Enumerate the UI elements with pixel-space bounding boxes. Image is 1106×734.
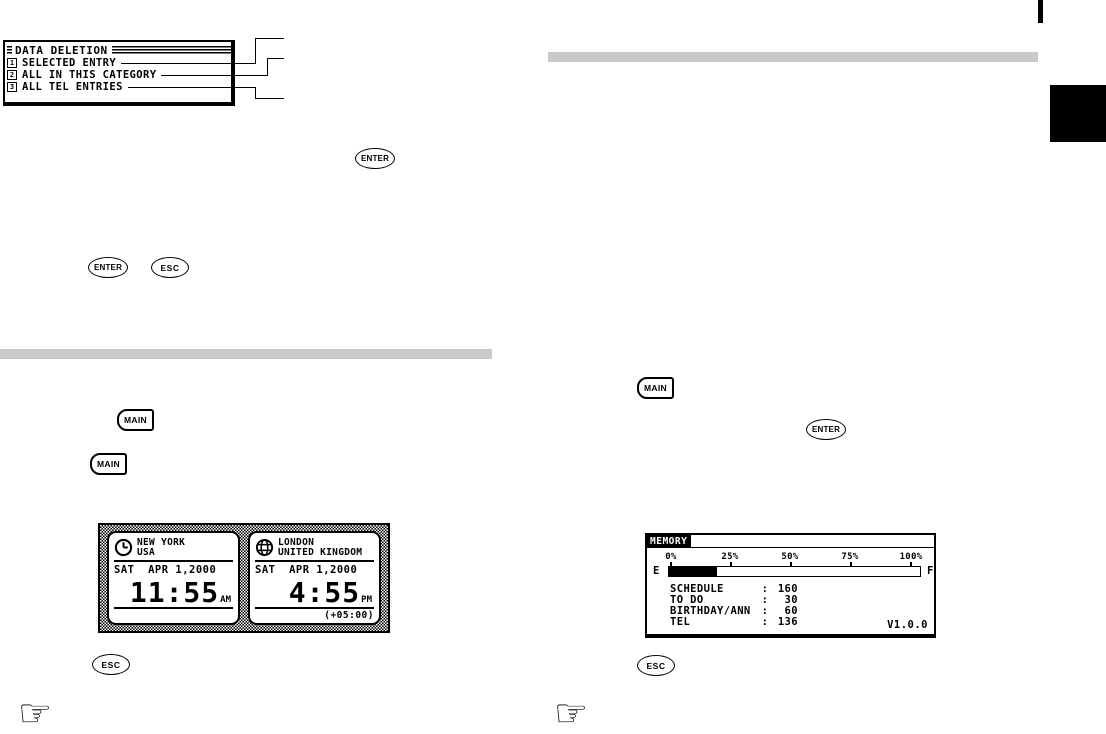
divider: [114, 560, 233, 562]
memory-title: MEMORY: [647, 534, 691, 548]
entry-label: TEL: [670, 616, 758, 628]
esc-key-label: ESC: [161, 263, 180, 273]
lcd-screen-data-deletion: DATA DELETION 1 SELECTED ENTRY 2 ALL IN …: [3, 40, 235, 106]
world-clock-panel: LONDON UNITED KINGDOM SAT APR 1,2000 4:5…: [248, 531, 381, 625]
callout-line-3: [231, 87, 256, 88]
enter-key-icon: ENTER: [806, 419, 846, 440]
title-fill-stripes: [112, 46, 231, 55]
callout-dash: [128, 87, 231, 88]
meridiem-label: AM: [220, 595, 231, 605]
list-icon: [7, 46, 12, 55]
main-key-label: MAIN: [644, 383, 667, 393]
time-value: 4:55: [289, 581, 360, 605]
meridiem-label: PM: [361, 595, 372, 605]
manual-page: DATA DELETION 1 SELECTED ENTRY 2 ALL IN …: [0, 0, 1106, 734]
main-key-icon: MAIN: [637, 377, 674, 399]
enter-key-label: ENTER: [361, 154, 389, 163]
manicule-note-icon: ☞: [554, 698, 588, 728]
callout-line-2: [267, 58, 284, 76]
gauge-fill: [669, 567, 717, 576]
section-heading-bar: [0, 349, 492, 359]
chapter-tab: [1050, 85, 1106, 142]
menu-item-label: SELECTED ENTRY: [22, 57, 116, 69]
callout-line-2: [231, 75, 268, 76]
entry-value: 136: [772, 616, 798, 628]
memory-title-bar: MEMORY: [647, 535, 934, 548]
section-heading-bar: [548, 52, 1038, 62]
callout-line-1: [231, 63, 256, 64]
callout-line-3: [255, 88, 284, 99]
time-row: 4:55 PM: [255, 576, 374, 605]
home-clock-header: NEW YORK USA: [114, 536, 233, 559]
city-name: NEW YORK: [137, 538, 185, 548]
scale-label-50: 50%: [781, 552, 798, 562]
footer-row: [114, 609, 233, 621]
main-key-icon: MAIN: [117, 409, 154, 431]
lcd-menu-title: DATA DELETION: [15, 44, 108, 57]
menu-item-selected-entry: 1 SELECTED ENTRY: [7, 57, 231, 69]
esc-key-icon: ESC: [637, 655, 675, 676]
lcd-screen-memory: MEMORY 0% 25% 50% 75% 100% E F SCHEDULE …: [645, 533, 936, 638]
main-key-icon: MAIN: [90, 453, 127, 475]
entry-colon: :: [758, 616, 772, 628]
enter-key-label: ENTER: [812, 425, 840, 434]
divider: [255, 560, 374, 562]
esc-key-label: ESC: [102, 660, 121, 670]
callout-dash: [121, 63, 231, 64]
enter-key-icon: ENTER: [355, 148, 395, 169]
globe-icon: [255, 538, 274, 557]
menu-item-all-tel-entries: 3 ALL TEL ENTRIES: [7, 81, 231, 93]
scale-label-25: 25%: [721, 552, 738, 562]
gauge-full-label: F: [927, 565, 933, 577]
time-offset: (+05:00): [255, 609, 374, 621]
main-key-label: MAIN: [124, 415, 147, 425]
date-text: SAT APR 1,2000: [255, 564, 374, 576]
country-name: UNITED KINGDOM: [278, 548, 362, 558]
esc-key-label: ESC: [647, 661, 666, 671]
gauge-empty-label: E: [653, 565, 659, 577]
menu-item-label: ALL TEL ENTRIES: [22, 81, 123, 93]
esc-key-icon: ESC: [92, 654, 130, 675]
world-clock-header: LONDON UNITED KINGDOM: [255, 536, 374, 559]
manicule-note-icon: ☞: [18, 698, 52, 728]
memory-entry-todo: TO DO : 30: [670, 594, 798, 605]
callout-dash: [161, 75, 231, 76]
memory-usage-gauge: [668, 566, 921, 577]
menu-item-label: ALL IN THIS CATEGORY: [22, 69, 156, 81]
enter-key-icon: ENTER: [88, 257, 128, 278]
memory-entry-list: SCHEDULE : 160 TO DO : 30 BIRTHDAY/ANN :…: [670, 583, 798, 627]
firmware-version: V1.0.0: [887, 619, 928, 631]
title-underline: [691, 535, 934, 548]
date-text: SAT APR 1,2000: [114, 564, 233, 576]
scale-label-75: 75%: [841, 552, 858, 562]
city-name: LONDON: [278, 538, 362, 548]
main-key-label: MAIN: [97, 459, 120, 469]
clock-icon: [114, 538, 133, 557]
scale-label-0: 0%: [665, 552, 676, 562]
country-name: USA: [137, 548, 185, 558]
time-value: 11:55: [130, 581, 219, 605]
page-edge-tick: [1038, 0, 1043, 23]
menu-item-all-in-category: 2 ALL IN THIS CATEGORY: [7, 69, 231, 81]
memory-entry-tel: TEL : 136: [670, 616, 798, 627]
memory-entry-schedule: SCHEDULE : 160: [670, 583, 798, 594]
item-number-icon: 1: [7, 58, 17, 68]
lcd-title-bar: DATA DELETION: [7, 44, 231, 57]
time-row: 11:55 AM: [114, 576, 233, 605]
esc-key-icon: ESC: [151, 257, 189, 278]
home-clock-panel: NEW YORK USA SAT APR 1,2000 11:55 AM: [107, 531, 240, 625]
item-number-icon: 3: [7, 82, 17, 92]
item-number-icon: 2: [7, 70, 17, 80]
memory-entry-birthday: BIRTHDAY/ANN : 60: [670, 605, 798, 616]
scale-label-100: 100%: [900, 552, 923, 562]
lcd-screen-world-clock: NEW YORK USA SAT APR 1,2000 11:55 AM: [98, 523, 390, 633]
enter-key-label: ENTER: [94, 263, 122, 272]
